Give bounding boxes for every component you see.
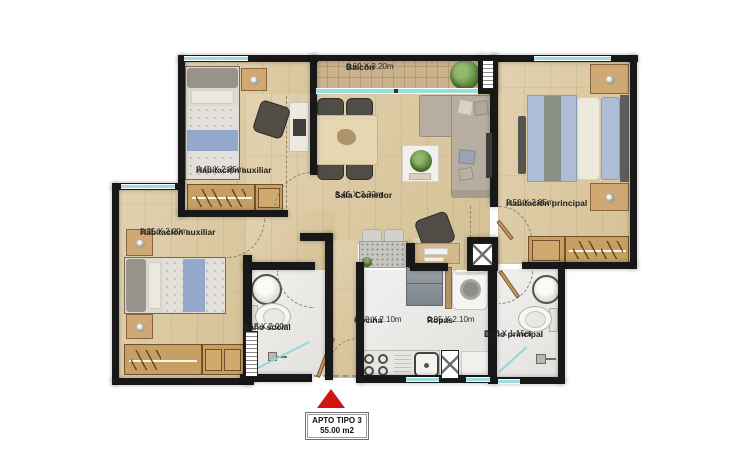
sofa-pillow xyxy=(473,100,489,116)
room-dims: 2.50 X 3.85m xyxy=(506,198,554,207)
work-desk xyxy=(414,243,460,264)
plant-icon xyxy=(410,150,432,172)
lamp-icon xyxy=(136,323,145,332)
room-dims: 2.40 X 2.85m xyxy=(196,165,244,174)
wall-segment xyxy=(300,233,333,241)
faucet xyxy=(424,363,429,368)
room-dims: 0.60 X 3.20m xyxy=(346,62,394,71)
window xyxy=(406,377,439,382)
fridge xyxy=(406,267,443,306)
room-dims: 1.15 X 2.00m xyxy=(243,322,291,331)
wall-segment xyxy=(310,55,317,175)
bathroom-sink xyxy=(532,275,561,304)
room-dims: 0.95 X 2.10m xyxy=(427,315,475,324)
room-dims: 1.60 X 2.10m xyxy=(354,315,402,324)
pantry-partition xyxy=(445,267,452,309)
wall-segment xyxy=(488,262,497,384)
apartment-area-label: 55.00 m2 xyxy=(308,426,366,436)
double-bed xyxy=(518,94,630,184)
centerpiece xyxy=(337,129,356,145)
kitchen-column xyxy=(441,350,459,379)
pillow xyxy=(191,90,234,104)
floorplan: Habitación auxiliar 2.40 X 2.85m Balcón … xyxy=(0,0,732,474)
laptop xyxy=(293,119,306,136)
pillow xyxy=(148,262,161,309)
nightstand xyxy=(126,314,153,339)
washing-machine xyxy=(452,269,488,310)
wall-segment xyxy=(522,262,558,269)
duct-panel xyxy=(482,60,494,89)
bar-counter xyxy=(359,241,408,268)
wall-segment xyxy=(410,263,448,271)
column-panel xyxy=(472,243,493,266)
window xyxy=(498,379,520,384)
window xyxy=(466,377,490,382)
room-dims: 2.35 X 3.00m xyxy=(140,227,188,236)
closet-drawer xyxy=(224,349,241,371)
sofa-pillow xyxy=(457,99,474,116)
bed-runner xyxy=(544,96,561,181)
blanket-stripe xyxy=(183,259,205,312)
washer-panel xyxy=(455,272,485,275)
plant-icon xyxy=(450,60,480,90)
sofa-pillow xyxy=(458,149,475,165)
window xyxy=(121,184,175,189)
wall-segment xyxy=(406,243,415,267)
hangers xyxy=(131,350,161,370)
lamp-icon xyxy=(136,239,145,248)
pillow xyxy=(601,97,620,180)
tv-panel xyxy=(486,133,492,178)
headboard xyxy=(620,95,629,182)
laundry-counter xyxy=(461,351,489,377)
wall-segment xyxy=(178,55,185,217)
blanket-stripe xyxy=(187,130,238,151)
pillow xyxy=(577,97,600,180)
closet xyxy=(187,184,283,211)
drainboard xyxy=(394,353,411,376)
lamp-icon xyxy=(605,193,615,203)
desk xyxy=(289,102,309,152)
hangers xyxy=(226,189,246,207)
fridge-divider xyxy=(407,283,442,284)
wall-segment xyxy=(178,210,288,217)
lamp-icon xyxy=(250,76,259,85)
bench xyxy=(518,116,526,174)
headboard-pillow xyxy=(187,68,238,88)
closet xyxy=(528,236,629,264)
closet-divider xyxy=(254,185,256,211)
single-bed xyxy=(185,66,240,180)
nightstand xyxy=(590,183,629,211)
coffee-table xyxy=(402,145,439,182)
wall-segment xyxy=(310,55,484,61)
headboard-pillow xyxy=(126,259,146,312)
kitchen-counter xyxy=(359,350,440,378)
room-dims: 3.45 X 3.32m xyxy=(335,190,383,199)
keyboard xyxy=(424,257,444,262)
sliding-door-window xyxy=(316,88,478,94)
hangers xyxy=(601,241,623,259)
burner xyxy=(364,354,374,364)
entrance-marker-icon xyxy=(317,389,345,408)
washer-door xyxy=(460,279,481,300)
wall-segment xyxy=(325,233,333,380)
apartment-type-box-inner: APTO TIPO 3 55.00 m2 xyxy=(307,414,367,438)
closet-divider xyxy=(201,345,203,375)
sofa-pillow xyxy=(458,167,474,181)
dining-table xyxy=(313,115,378,165)
zone-line xyxy=(470,206,471,238)
lamp-icon xyxy=(605,75,615,85)
toilet-bowl xyxy=(525,311,546,328)
closet xyxy=(124,344,244,375)
duvet xyxy=(527,95,577,182)
closet-drawer xyxy=(532,240,560,261)
closet-drawer xyxy=(205,349,222,371)
laptop xyxy=(424,248,448,255)
wall-segment xyxy=(630,55,637,269)
window xyxy=(534,56,611,61)
apartment-type-label: APTO TIPO 3 xyxy=(308,416,366,426)
shower-arm xyxy=(546,358,556,360)
closet-divider xyxy=(564,237,566,264)
shower-valve-icon xyxy=(536,354,546,364)
wall-segment xyxy=(558,262,637,269)
armrest xyxy=(452,190,491,198)
floorplan-page: Habitación auxiliar 2.40 X 2.85m Balcón … xyxy=(0,0,732,474)
burner xyxy=(378,354,388,364)
hangers xyxy=(196,189,222,207)
mattress xyxy=(163,259,225,312)
hangers xyxy=(573,241,597,259)
slider-mullion xyxy=(394,89,398,93)
wall-segment xyxy=(558,262,565,384)
apartment-type-box: APTO TIPO 3 55.00 m2 xyxy=(305,412,369,440)
wall-segment xyxy=(243,262,315,270)
wall-segment xyxy=(112,378,254,385)
nightstand xyxy=(241,68,267,91)
tray xyxy=(409,173,431,180)
window xyxy=(184,56,248,61)
wall-segment xyxy=(112,183,119,385)
room-dims: 2.10 X 1.15m xyxy=(484,329,532,338)
nightstand xyxy=(590,64,629,94)
duct-panel xyxy=(245,331,258,377)
single-bed xyxy=(124,257,226,314)
